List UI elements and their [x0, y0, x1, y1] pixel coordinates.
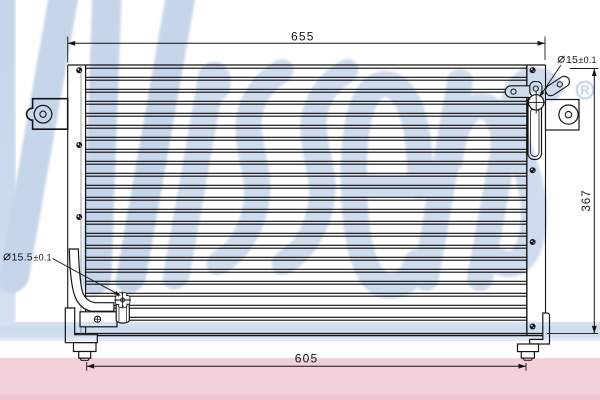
svg-text:15: 15 — [566, 54, 578, 66]
svg-text:655: 655 — [291, 30, 315, 44]
svg-text:367: 367 — [581, 190, 593, 212]
svg-text:±0.1: ±0.1 — [34, 253, 52, 263]
svg-text:±0.1: ±0.1 — [579, 55, 597, 65]
svg-text:R: R — [580, 83, 590, 98]
